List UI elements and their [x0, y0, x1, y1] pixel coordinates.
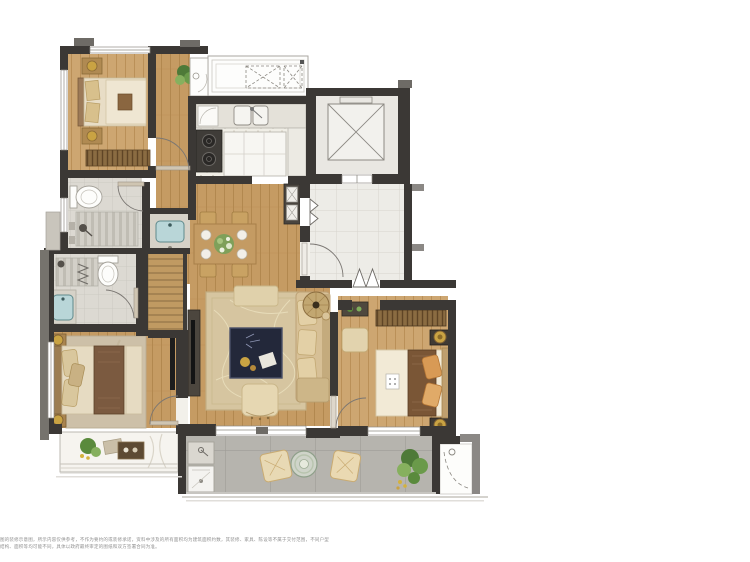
- kitchen-island-counter: [224, 132, 286, 176]
- elevator-doors: [342, 175, 372, 183]
- wardrobe: [376, 310, 446, 326]
- window: [48, 342, 54, 418]
- staircase: [148, 252, 187, 334]
- bench-icon: [86, 150, 150, 166]
- shower-head-icon: [58, 261, 65, 268]
- window: [368, 427, 420, 435]
- sliding-door-window: [216, 426, 306, 435]
- round-mat-icon: [291, 451, 317, 477]
- remote-icon: [386, 374, 399, 389]
- window: [61, 70, 67, 150]
- bed-icon: [78, 78, 146, 126]
- ac-platform-north: [190, 56, 308, 96]
- laundry-counter: [188, 442, 214, 464]
- lamp-icon: [53, 335, 63, 345]
- bed-icon: [54, 346, 142, 414]
- bath-accessory: [69, 236, 75, 244]
- shoe-cabinet: [284, 184, 300, 224]
- ottoman-bench: [234, 286, 278, 306]
- disclaimer-line-2: 结构、面积等均可能不同，具体以政府最终审定的图纸和双方签署合同为准。: [0, 543, 420, 550]
- vent-icon: [300, 60, 304, 64]
- window: [90, 47, 150, 53]
- kitchen: [196, 104, 306, 176]
- window: [61, 198, 67, 232]
- bath-accessory: [69, 222, 75, 230]
- living-room: [188, 286, 330, 420]
- floor-cushion: [330, 450, 361, 482]
- tv-console: [188, 310, 200, 396]
- centerpiece-flowers-icon: [214, 234, 234, 254]
- disclaimer-text: 图的装修示意图，所示内容仅供参考，不作为要约的或装修承诺，资料中涉及的所有面积均…: [0, 536, 420, 550]
- floor-plan-drawing: [0, 0, 750, 562]
- cabinet-icon: [198, 106, 218, 126]
- stair-banister: [183, 252, 187, 334]
- duct-closet: [190, 58, 208, 96]
- coffee-table: [230, 328, 282, 378]
- tv-icon: [191, 320, 195, 384]
- lamp-icon: [87, 61, 97, 71]
- washing-machine-icon: [188, 466, 214, 492]
- lamp-icon: [53, 415, 63, 425]
- bed-icon: [376, 348, 452, 418]
- floor-plan-page: 图的装修示意图，所示内容仅供参考，不作为要约的或装修承诺，资料中涉及的所有面积均…: [0, 0, 750, 562]
- tv-icon: [170, 338, 175, 390]
- sink-icon: [234, 106, 268, 125]
- armchair: [342, 328, 368, 352]
- foyer-floor: [310, 184, 404, 280]
- toilet-icon: [70, 186, 102, 208]
- stove-icon: [196, 130, 222, 172]
- lamp-icon: [87, 131, 97, 141]
- tray-icon: [118, 442, 144, 459]
- equipment-platform: [440, 444, 472, 494]
- elevator-shaft: [316, 96, 398, 174]
- bay-window-seat: [60, 432, 178, 472]
- kitchen-cabinet: [288, 128, 306, 176]
- toilet-icon: [98, 256, 118, 286]
- armchair: [242, 384, 278, 420]
- disclaimer-line-1: 图的装修示意图，所示内容仅供参考，不作为要约的或装修承诺，资料中涉及的所有面积均…: [0, 536, 420, 543]
- floor-cushion: [259, 449, 292, 482]
